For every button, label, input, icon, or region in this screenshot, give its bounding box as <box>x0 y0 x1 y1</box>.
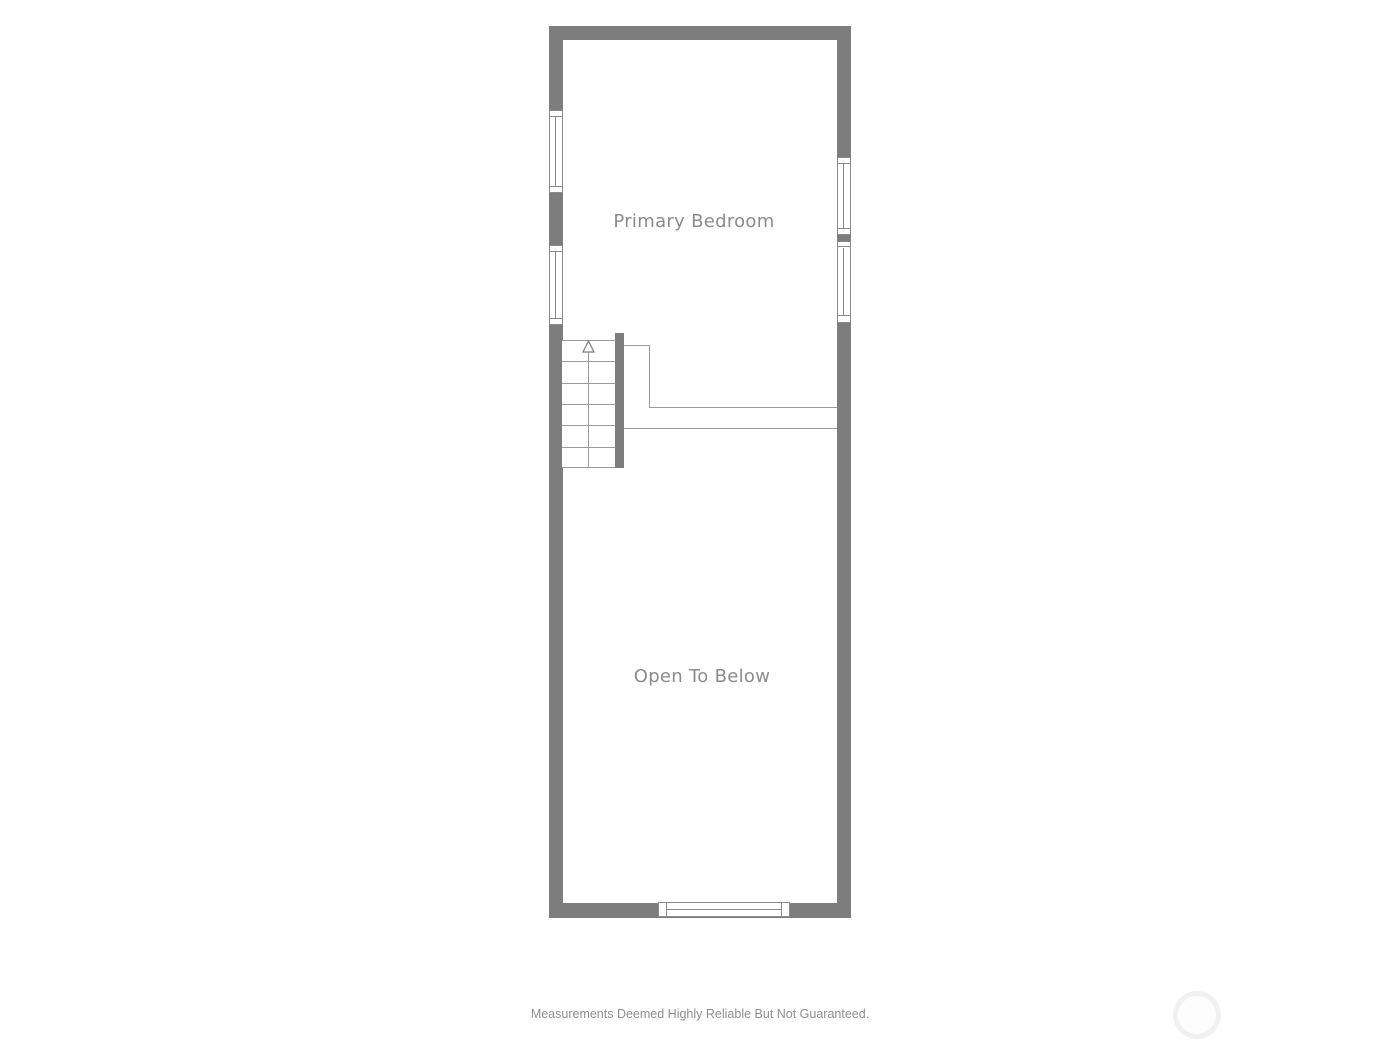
disclaimer-text: Measurements Deemed Highly Reliable But … <box>450 1006 950 1022</box>
stair-wall <box>615 333 624 468</box>
room-label-open-to-below: Open To Below <box>552 664 852 690</box>
window-symbol <box>837 241 851 323</box>
loft-railing-line <box>649 407 837 408</box>
window-symbol <box>549 110 563 193</box>
window-symbol <box>658 902 790 917</box>
floor-plan-image: Primary Bedroom Open To Below Measuremen… <box>0 0 1400 1050</box>
watermark-logo-icon <box>1173 991 1221 1039</box>
window-symbol <box>549 245 563 325</box>
loft-railing-line <box>624 345 649 346</box>
stair-direction-line <box>588 352 589 468</box>
room-label-primary-bedroom: Primary Bedroom <box>544 209 844 235</box>
stairs-up-arrow-icon <box>582 340 595 353</box>
loft-railing-line <box>649 345 650 407</box>
loft-railing-line <box>624 428 837 429</box>
wall-top <box>549 26 851 40</box>
